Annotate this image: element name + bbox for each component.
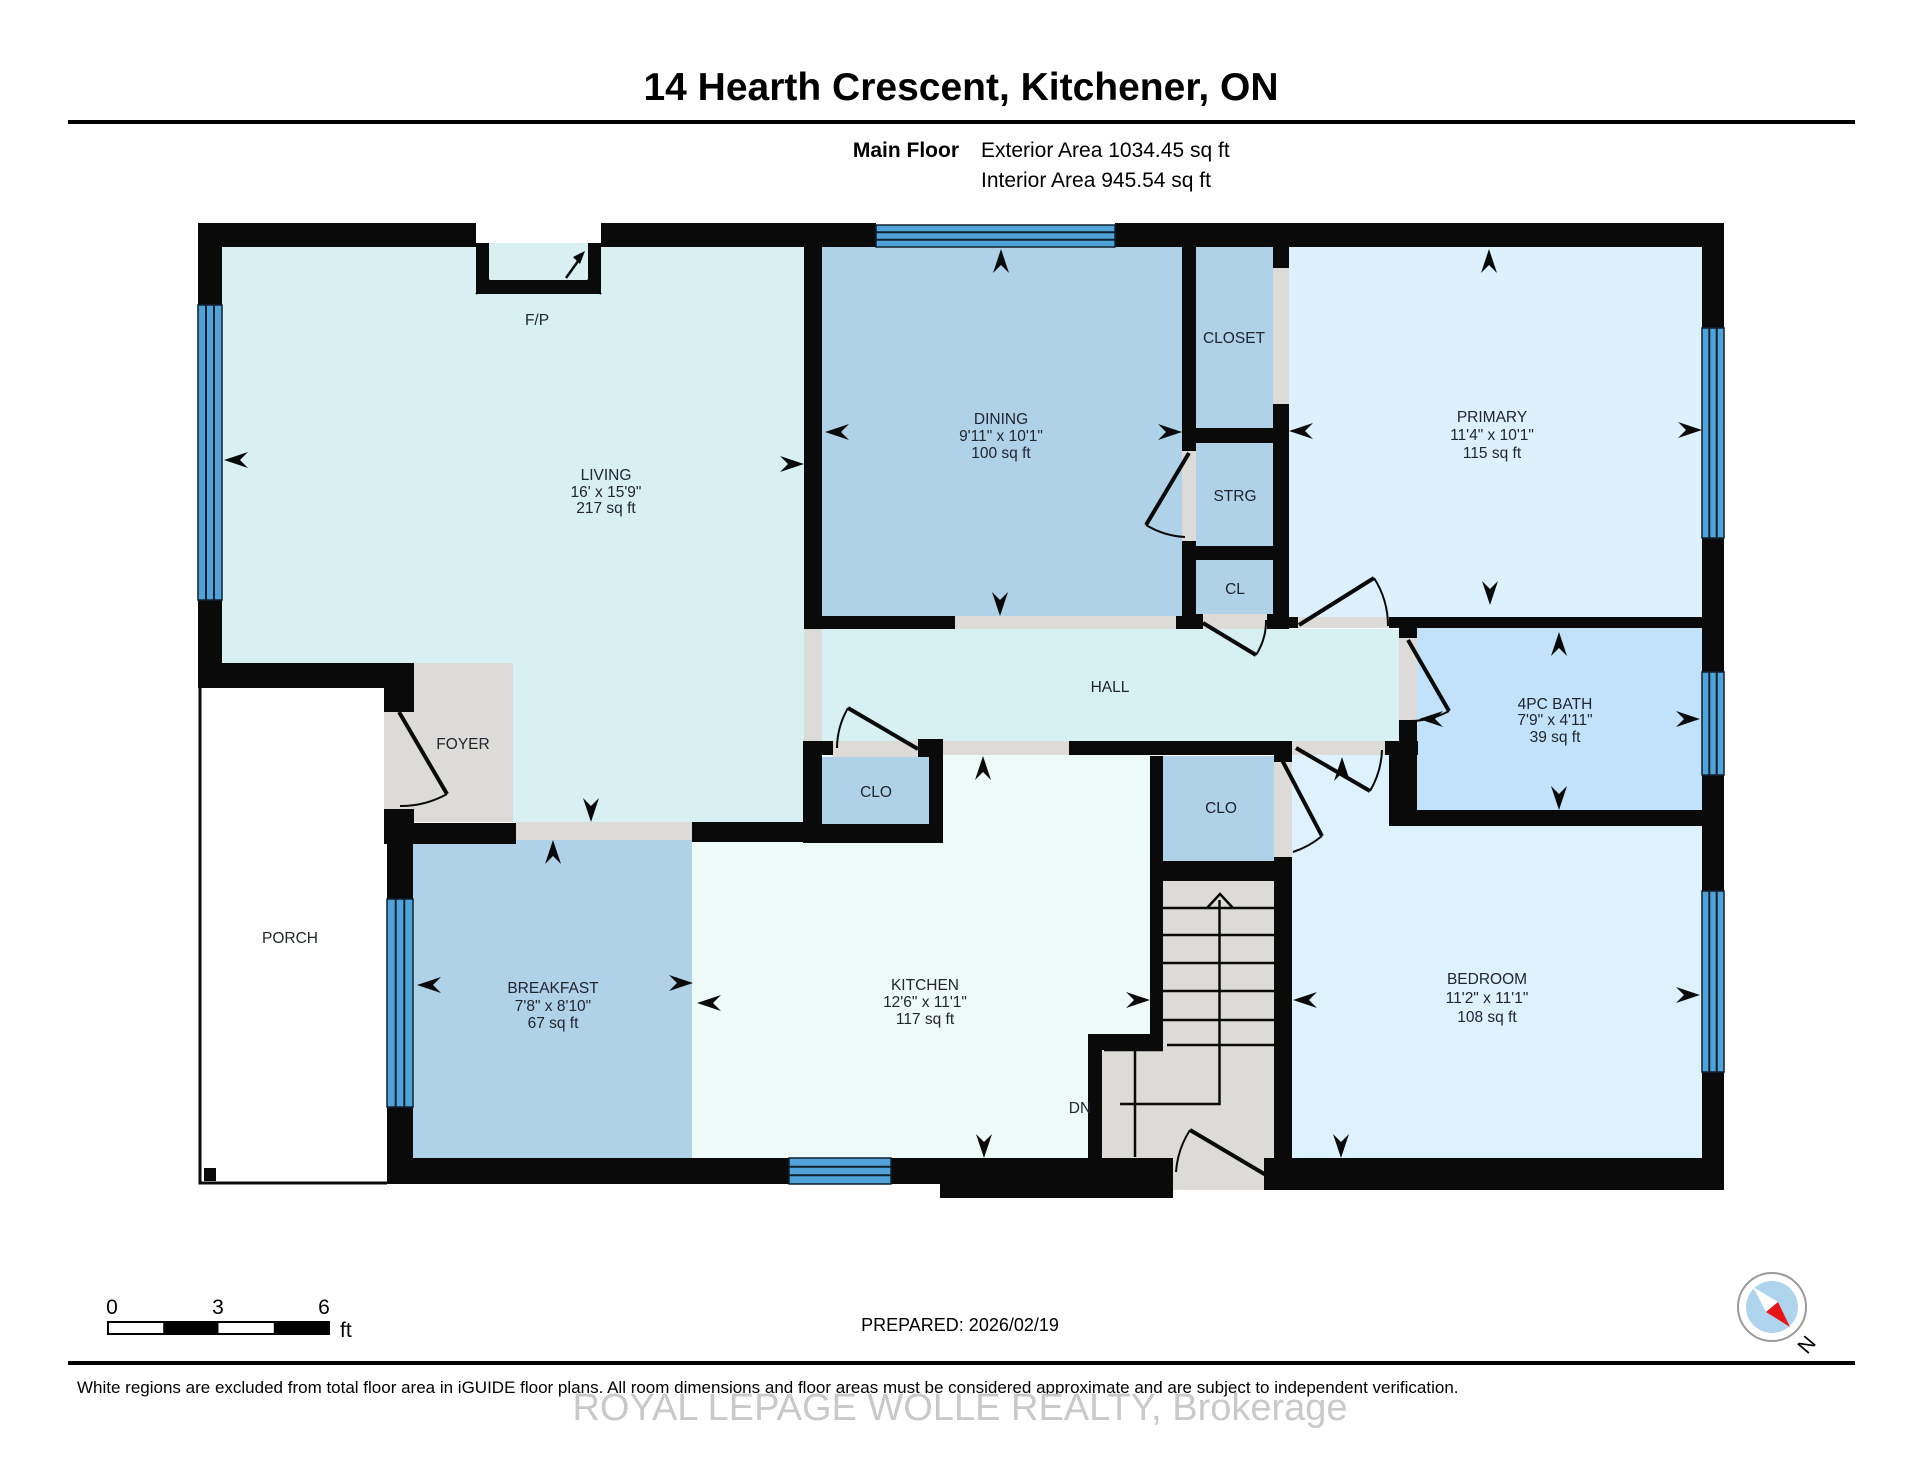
svg-text:PRIMARY: PRIMARY	[1457, 409, 1527, 426]
svg-text:108 sq ft: 108 sq ft	[1457, 1009, 1517, 1026]
svg-text:7'9" x 4'11": 7'9" x 4'11"	[1517, 712, 1592, 729]
svg-text:217 sq ft: 217 sq ft	[576, 500, 636, 517]
svg-text:Main Floor: Main Floor	[853, 139, 959, 162]
svg-text:CLO: CLO	[1205, 800, 1237, 817]
svg-text:7'8" x 8'10": 7'8" x 8'10"	[515, 998, 591, 1015]
svg-text:11'2" x 11'1": 11'2" x 11'1"	[1446, 990, 1529, 1007]
svg-text:DN: DN	[1069, 1100, 1091, 1117]
svg-text:BEDROOM: BEDROOM	[1447, 971, 1527, 988]
svg-text:FOYER: FOYER	[436, 736, 489, 753]
svg-text:3: 3	[212, 1296, 224, 1319]
svg-text:14 Hearth Crescent, Kitchener,: 14 Hearth Crescent, Kitchener, ON	[643, 66, 1278, 109]
svg-text:11'4" x 10'1": 11'4" x 10'1"	[1450, 427, 1534, 444]
svg-text:16' x 15'9": 16' x 15'9"	[571, 484, 642, 501]
svg-text:STRG: STRG	[1213, 488, 1256, 505]
svg-text:6: 6	[318, 1296, 330, 1319]
svg-text:4PC BATH: 4PC BATH	[1518, 696, 1593, 713]
svg-text:F/P: F/P	[525, 312, 549, 329]
svg-text:Interior Area 945.54 sq ft: Interior Area 945.54 sq ft	[981, 169, 1211, 192]
svg-text:LIVING: LIVING	[581, 467, 632, 484]
svg-text:ROYAL LEPAGE WOLLE REALTY, Bro: ROYAL LEPAGE WOLLE REALTY, Brokerage	[572, 1387, 1347, 1429]
svg-text:67 sq ft: 67 sq ft	[528, 1015, 580, 1032]
svg-text:CL: CL	[1225, 581, 1245, 598]
svg-text:CLOSET: CLOSET	[1203, 330, 1266, 347]
svg-text:Exterior Area 1034.45 sq ft: Exterior Area 1034.45 sq ft	[981, 139, 1230, 162]
svg-text:PREPARED: 2026/02/19: PREPARED: 2026/02/19	[861, 1315, 1059, 1335]
svg-text:39 sq ft: 39 sq ft	[1530, 729, 1582, 746]
svg-text:BREAKFAST: BREAKFAST	[507, 980, 599, 997]
svg-text:117 sq ft: 117 sq ft	[896, 1011, 955, 1028]
svg-text:12'6" x 11'1": 12'6" x 11'1"	[883, 994, 967, 1011]
svg-text:9'11" x 10'1": 9'11" x 10'1"	[959, 428, 1043, 445]
svg-text:HALL: HALL	[1091, 679, 1130, 696]
svg-text:0: 0	[106, 1296, 118, 1319]
svg-text:ft: ft	[340, 1319, 352, 1342]
svg-text:KITCHEN: KITCHEN	[891, 977, 959, 994]
svg-text:100 sq ft: 100 sq ft	[971, 445, 1031, 462]
svg-text:PORCH: PORCH	[262, 930, 318, 947]
svg-text:115 sq ft: 115 sq ft	[1463, 445, 1522, 462]
svg-text:CLO: CLO	[860, 784, 892, 801]
svg-text:DINING: DINING	[974, 411, 1028, 428]
